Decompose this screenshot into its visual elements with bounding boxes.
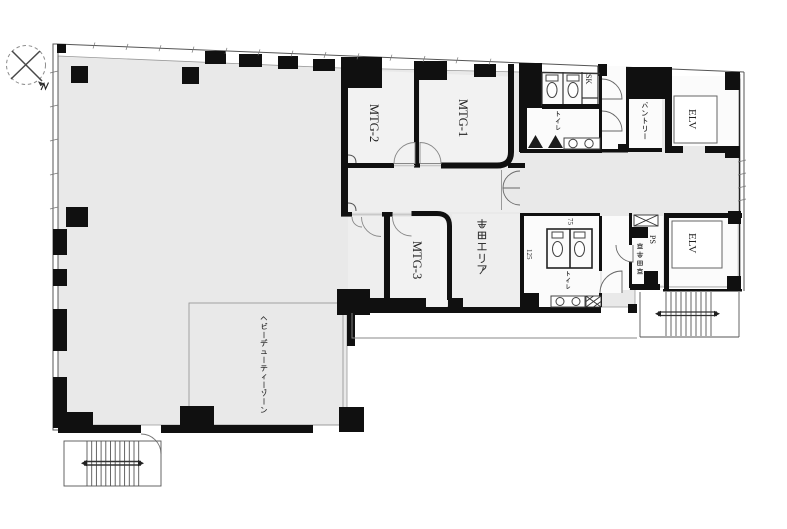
svg-text:PS: PS (648, 235, 657, 244)
svg-text:MTG-3: MTG-3 (410, 241, 424, 279)
svg-text:SK: SK (584, 74, 593, 84)
svg-text:75: 75 (566, 218, 574, 226)
svg-text:MTG-1: MTG-1 (456, 99, 470, 137)
svg-text:ELV: ELV (686, 109, 698, 129)
svg-text:ELV: ELV (686, 233, 698, 253)
svg-text:125: 125 (525, 249, 533, 260)
svg-text:MTG-2: MTG-2 (367, 104, 381, 142)
